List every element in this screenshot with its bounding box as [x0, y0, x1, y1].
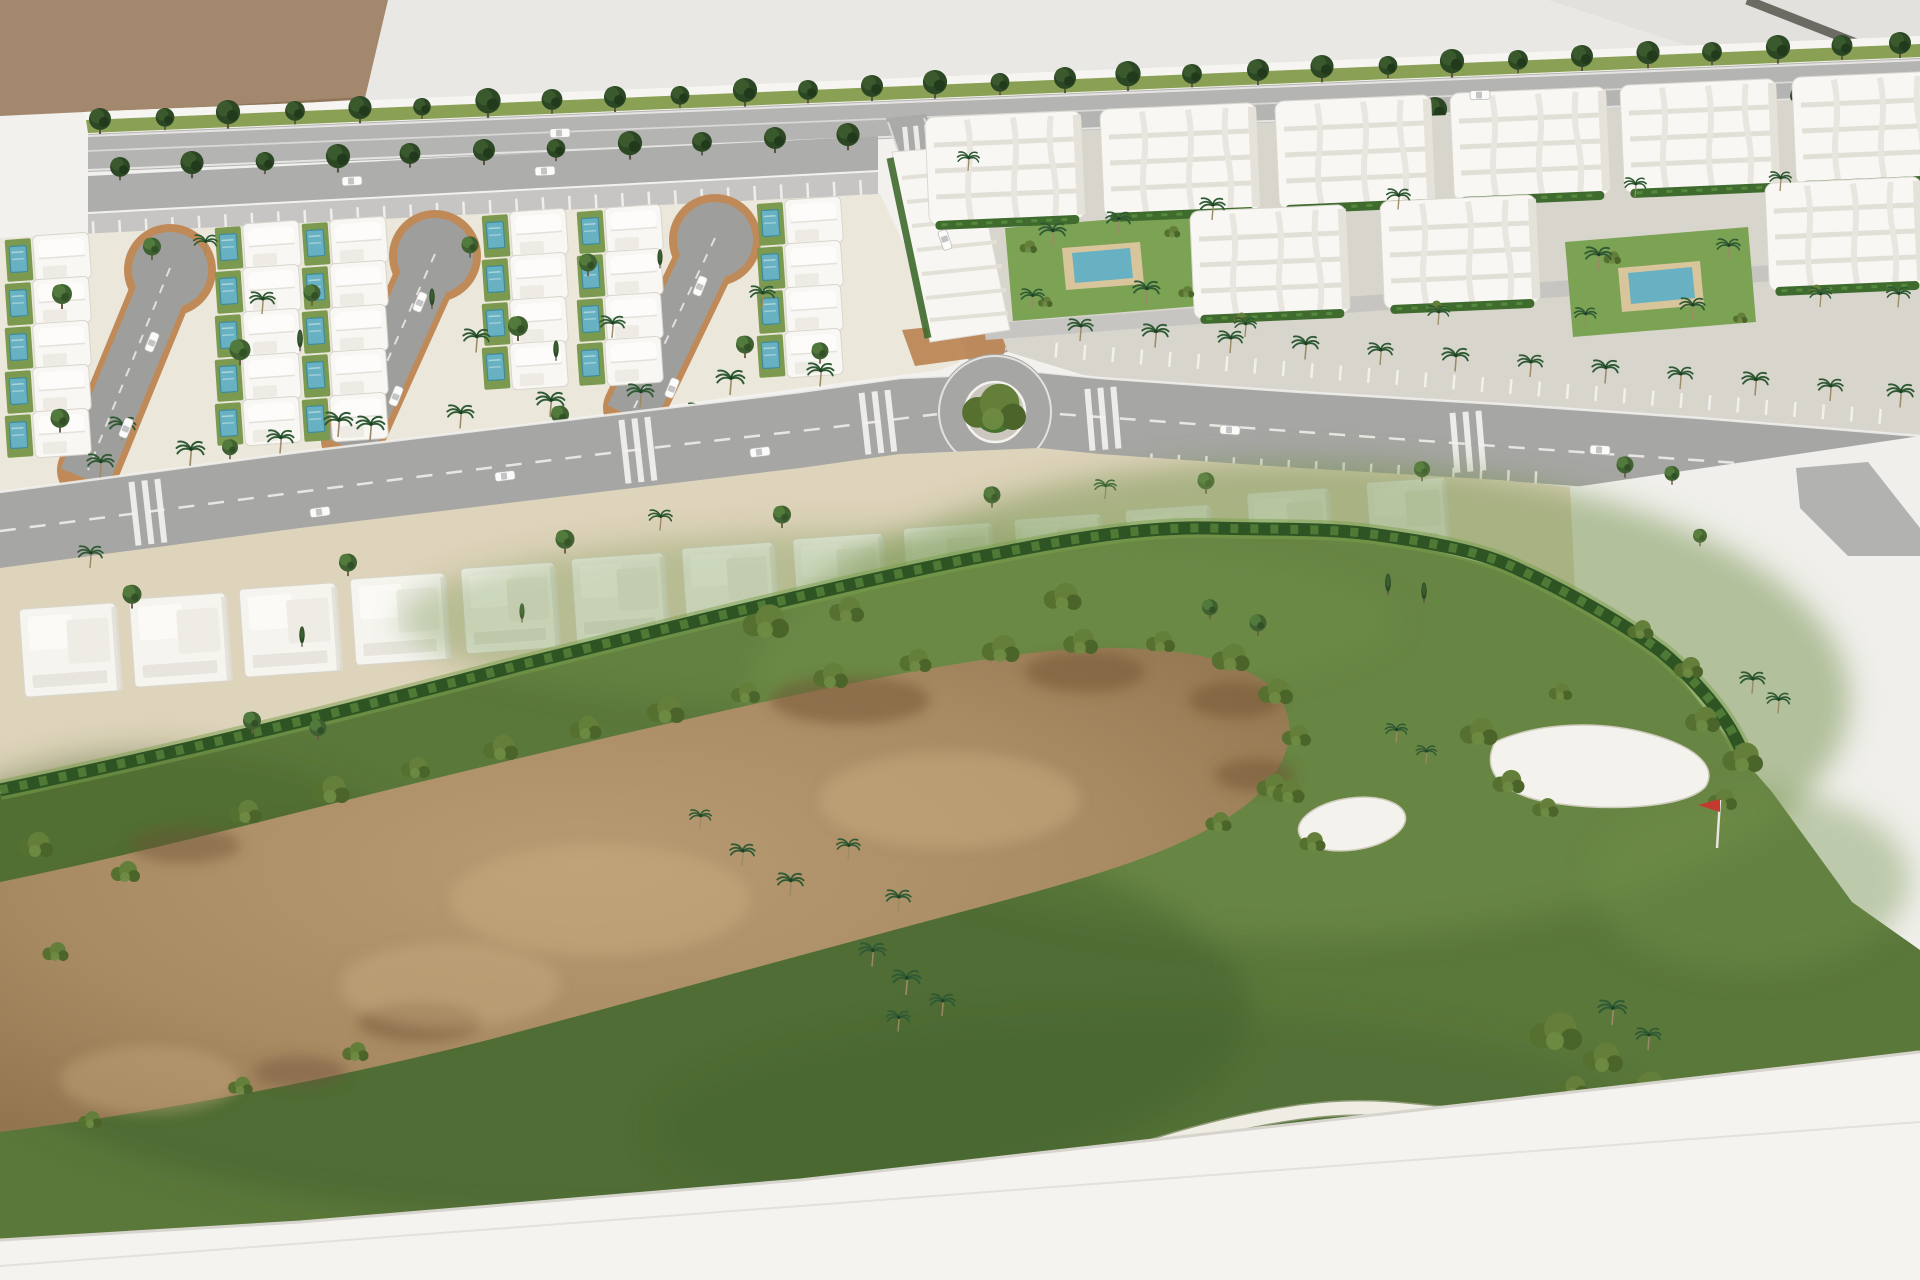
- apartment-block: [1792, 71, 1920, 191]
- villa-with-pool: [481, 208, 568, 260]
- model-car: [750, 446, 771, 457]
- community-pool: [1072, 248, 1133, 283]
- model-car: [495, 470, 516, 481]
- apartment-block: [1190, 205, 1351, 325]
- apartment-block: [1100, 103, 1261, 223]
- villa-with-pool: [481, 252, 568, 304]
- apartment-block: [1620, 79, 1781, 199]
- villa-with-pool: [4, 408, 91, 460]
- villa-with-pool: [301, 216, 388, 268]
- photo-of-scale-model: [0, 0, 1920, 1280]
- model-car: [550, 128, 570, 138]
- model-car: [342, 176, 362, 186]
- villa-with-pool: [4, 232, 91, 284]
- villa-with-pool: [756, 240, 843, 292]
- villa-with-pool: [301, 304, 388, 356]
- villa-with-pool: [576, 336, 663, 388]
- villa-with-pool: [214, 220, 301, 272]
- villa-with-pool: [576, 204, 663, 256]
- townhouse: [19, 603, 123, 698]
- villa-with-pool: [4, 320, 91, 372]
- townhouse: [239, 583, 343, 678]
- model-car: [1470, 90, 1490, 100]
- villa-with-pool: [756, 196, 843, 248]
- model-car: [1220, 425, 1241, 435]
- apartment-block: [925, 111, 1086, 231]
- scene: [0, 0, 1920, 1280]
- villa-with-pool: [214, 352, 301, 404]
- apartment-block: [1450, 87, 1611, 207]
- model-car: [1590, 445, 1610, 455]
- villa-with-pool: [214, 308, 301, 360]
- apartment-block: [1380, 195, 1541, 315]
- villa-with-pool: [756, 284, 843, 336]
- model-car: [535, 166, 555, 176]
- townhouse: [129, 593, 233, 688]
- villa-with-pool: [214, 264, 301, 316]
- villa-with-pool: [4, 364, 91, 416]
- apartment-block: [1275, 95, 1436, 215]
- apartment-block: [1765, 177, 1920, 297]
- villa-with-pool: [301, 348, 388, 400]
- villa-with-pool: [4, 276, 91, 328]
- villa-with-pool: [576, 292, 663, 344]
